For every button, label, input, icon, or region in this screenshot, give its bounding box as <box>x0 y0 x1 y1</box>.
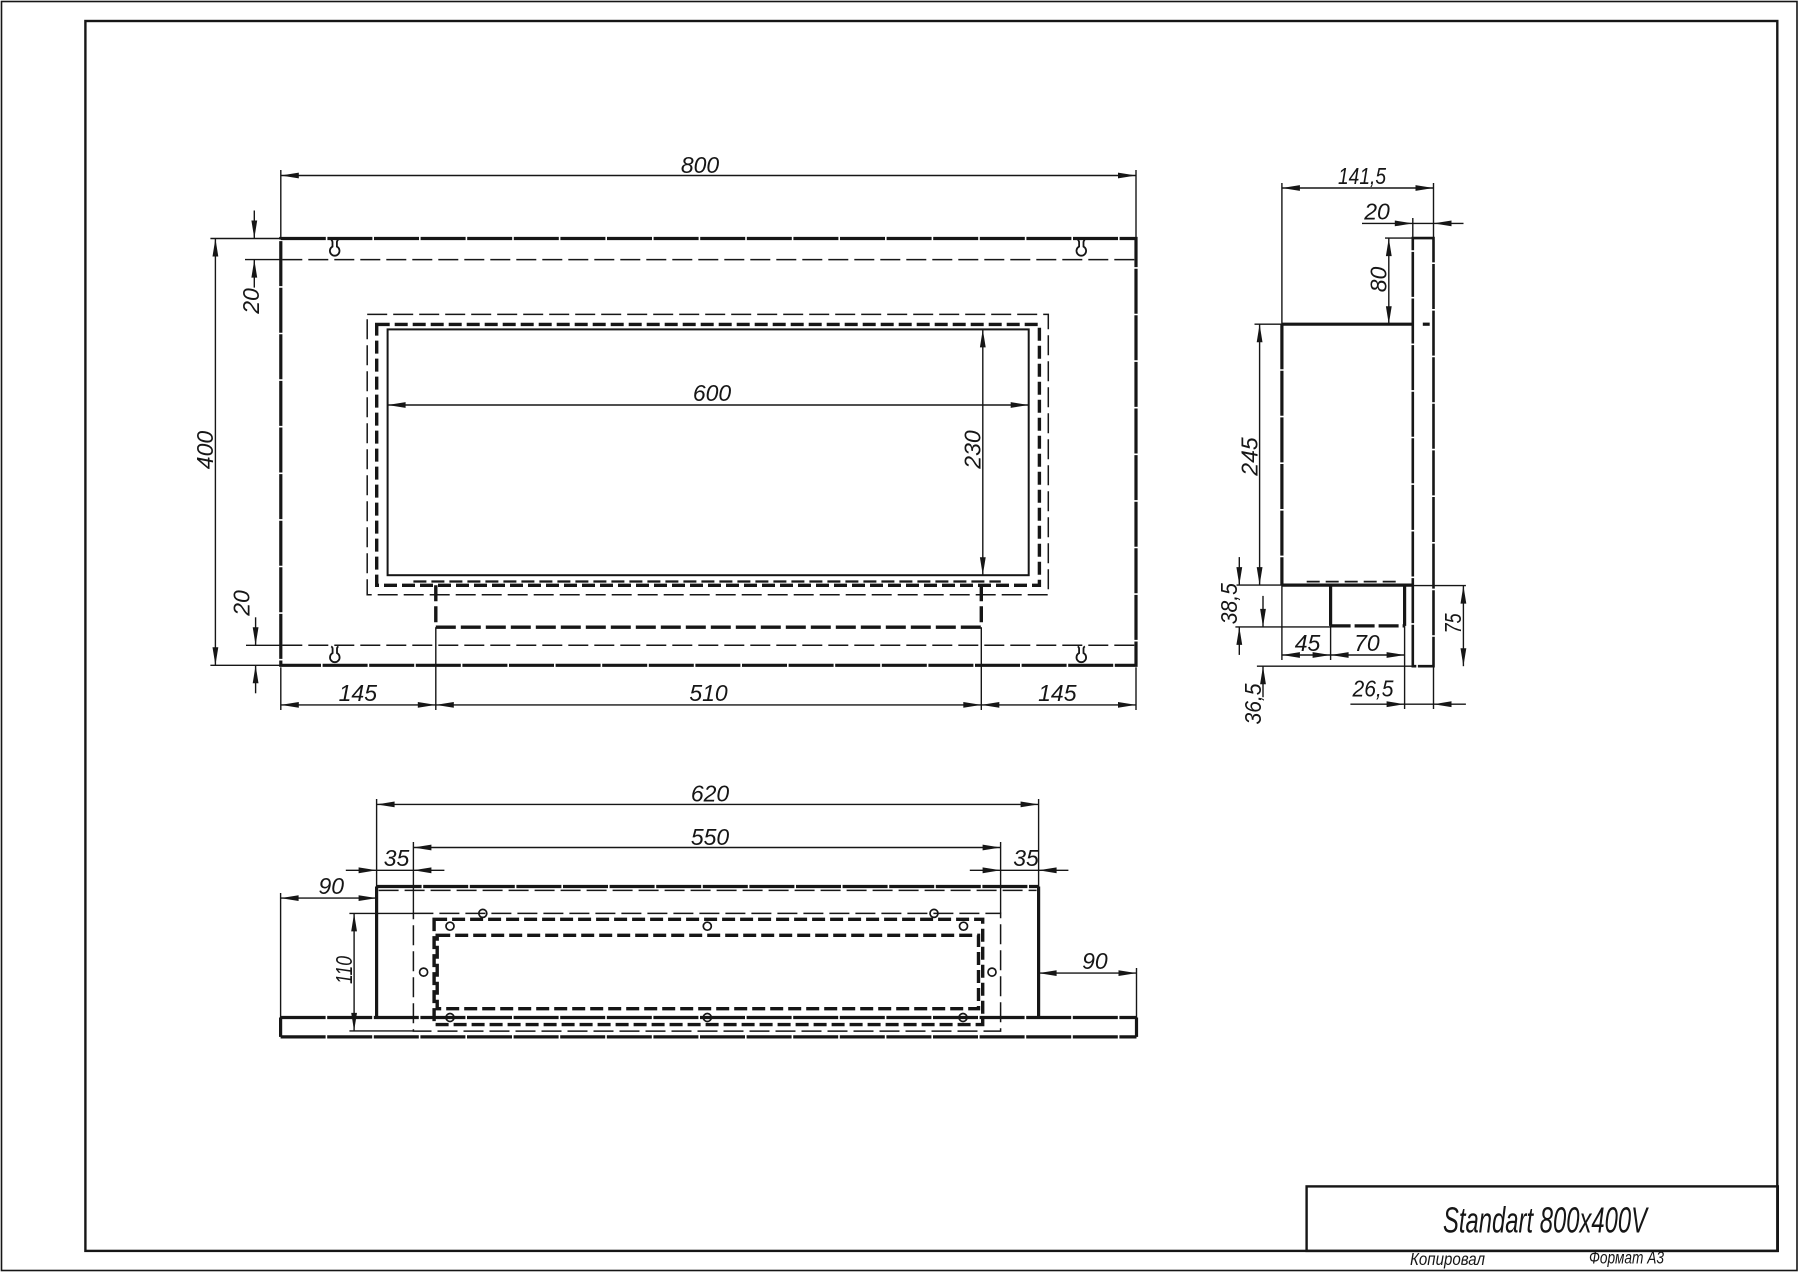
svg-text:550: 550 <box>691 824 730 850</box>
svg-text:20: 20 <box>1363 199 1390 225</box>
svg-text:800: 800 <box>681 152 720 178</box>
svg-text:Копировал: Копировал <box>1410 1249 1485 1269</box>
svg-text:Формат А3: Формат А3 <box>1589 1248 1664 1268</box>
svg-text:510: 510 <box>689 680 728 706</box>
svg-text:145: 145 <box>1038 680 1077 706</box>
svg-text:70: 70 <box>1354 630 1380 656</box>
svg-text:80: 80 <box>1366 267 1392 293</box>
svg-text:90: 90 <box>319 873 345 899</box>
svg-text:245: 245 <box>1236 437 1262 477</box>
svg-text:36,5: 36,5 <box>1240 683 1266 724</box>
svg-text:45: 45 <box>1295 630 1321 656</box>
svg-text:20: 20 <box>238 288 264 315</box>
svg-text:20: 20 <box>229 590 255 617</box>
svg-text:26,5: 26,5 <box>1352 676 1394 702</box>
svg-text:400: 400 <box>192 431 218 470</box>
svg-text:141,5: 141,5 <box>1338 163 1386 189</box>
svg-text:145: 145 <box>339 680 378 706</box>
svg-text:110: 110 <box>331 956 357 984</box>
svg-text:75: 75 <box>1440 613 1466 633</box>
svg-text:38,5: 38,5 <box>1216 583 1242 624</box>
svg-text:90: 90 <box>1082 948 1108 974</box>
svg-text:230: 230 <box>960 430 986 470</box>
svg-text:600: 600 <box>693 380 732 406</box>
svg-text:35: 35 <box>384 845 410 871</box>
svg-text:35: 35 <box>1013 845 1039 871</box>
svg-text:620: 620 <box>691 781 730 807</box>
svg-text:Standart 800x400V: Standart 800x400V <box>1443 1200 1649 1241</box>
